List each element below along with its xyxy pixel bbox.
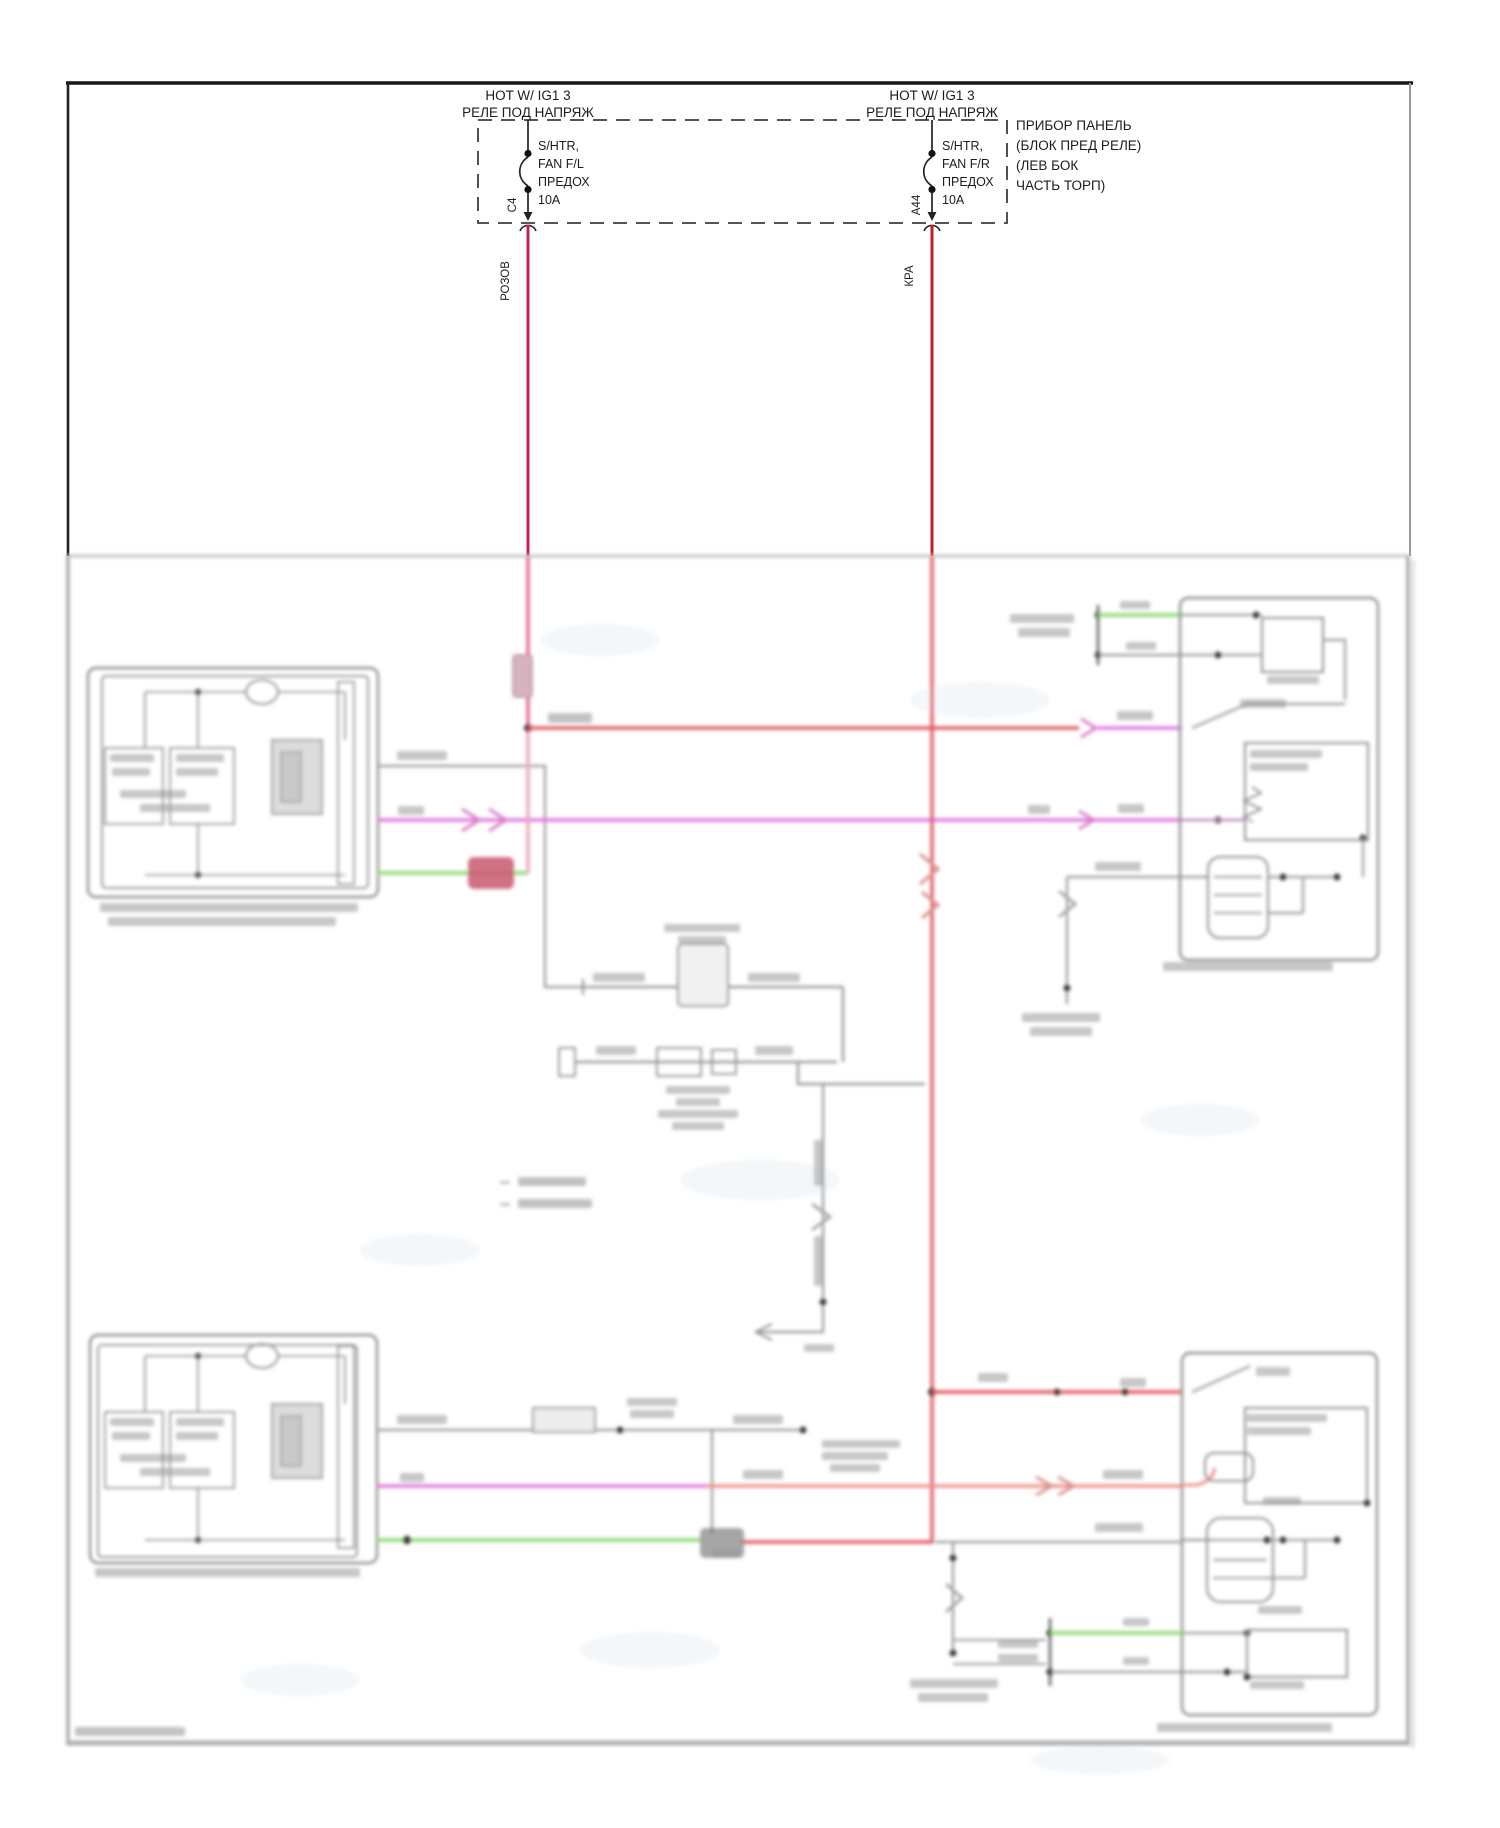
panel-note-line1: ПРИБОР ПАНЕЛЬ <box>1016 118 1132 133</box>
left-fuse-title-line1: HOT W/ IG1 3 <box>485 88 570 103</box>
left-fuse-label-line1: S/HTR, <box>538 139 579 153</box>
left-fuse-label-line3: ПРЕДОХ <box>538 175 590 189</box>
blurred-scan-region <box>66 556 1413 1774</box>
upper-left-box-wires <box>378 751 1182 987</box>
right-fuse-symbol <box>924 120 940 231</box>
right-fuse-title-line1: HOT W/ IG1 3 <box>889 88 974 103</box>
scanned-wiring-diagram-page: HOT W/ IG1 3 РЕЛЕ ПОД НАПРЯЖ HOT W/ IG1 … <box>0 0 1500 1828</box>
footer-caption-illegible <box>75 1727 185 1736</box>
right-fuse-label-line4: 10A <box>942 193 965 207</box>
upper-left-component-box <box>88 668 378 897</box>
page-frame-crisp <box>66 83 1413 556</box>
upper-right-component-box <box>1010 598 1378 1036</box>
fuse-block-dashed-box <box>478 120 1007 223</box>
left-fuse-symbol <box>520 120 536 231</box>
lower-left-component-box <box>90 1335 377 1563</box>
left-fuse-label-line4: 10A <box>538 193 561 207</box>
lower-left-box-wires <box>377 1398 1182 1702</box>
right-fuse-label-line3: ПРЕДОХ <box>942 175 994 189</box>
panel-note-line4: ЧАСТЬ ТОРП) <box>1016 178 1105 193</box>
panel-note-line2: (БЛОК ПРЕД РЕЛЕ) <box>1016 138 1141 153</box>
right-wire-color-label: КРА <box>904 265 916 287</box>
wiring-diagram-canvas: HOT W/ IG1 3 РЕЛЕ ПОД НАПРЯЖ HOT W/ IG1 … <box>0 0 1500 1828</box>
right-fuse-label-line1: S/HTR, <box>942 139 983 153</box>
left-fuse-label-line2: FAN F/L <box>538 157 584 171</box>
legend-illegible <box>500 1177 592 1208</box>
left-fuse-title-line2: РЕЛЕ ПОД НАПРЯЖ <box>462 105 594 120</box>
left-wire-color-label: РОЗОВ <box>500 261 512 301</box>
instrument-panel-note: ПРИБОР ПАНЕЛЬ (БЛОК ПРЕД РЕЛЕ) (ЛЕВ БОК … <box>1016 118 1141 193</box>
center-component-blurred <box>559 924 925 1352</box>
left-connector-pin-label: C4 <box>507 197 519 212</box>
right-fuse-label-line2: FAN F/R <box>942 157 990 171</box>
right-fuse-title-line2: РЕЛЕ ПОД НАПРЯЖ <box>866 105 998 120</box>
right-connector-pin-label: A44 <box>911 194 923 215</box>
panel-note-line3: (ЛЕВ БОК <box>1016 158 1078 173</box>
